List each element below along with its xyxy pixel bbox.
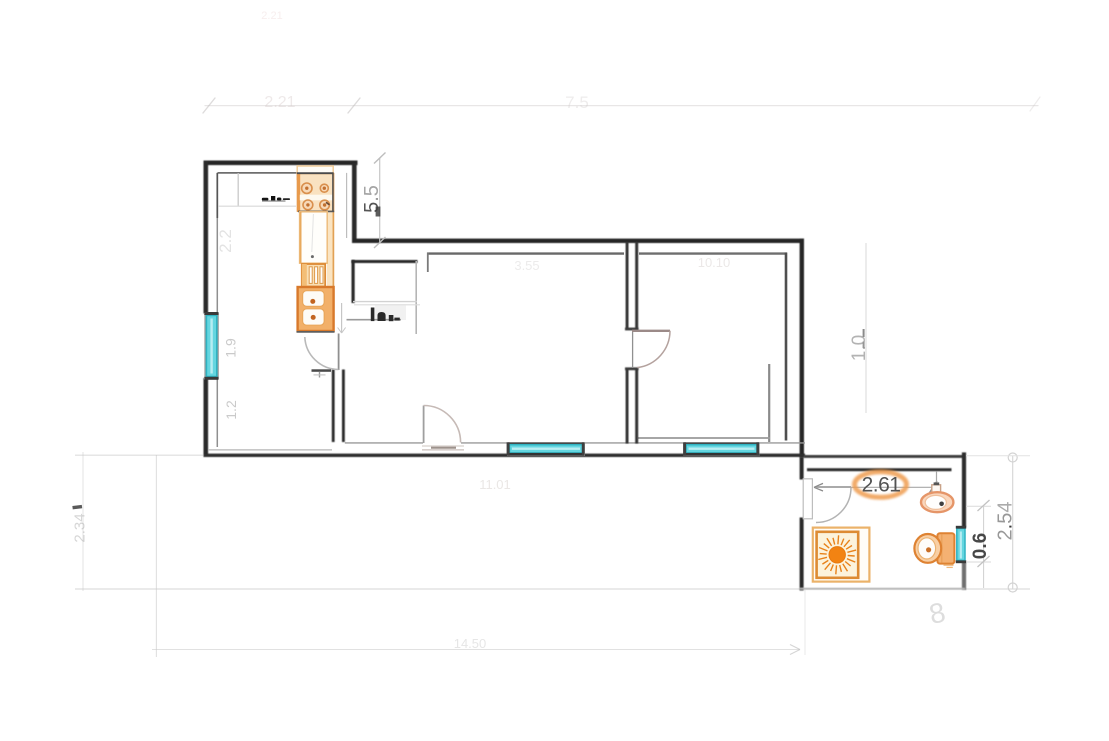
svg-text:2.2: 2.2 [216,229,235,253]
svg-text:2.34: 2.34 [72,513,89,542]
svg-text:3.55: 3.55 [514,258,539,273]
svg-text:2.61: 2.61 [862,474,901,497]
svg-text:7.5: 7.5 [565,93,589,112]
svg-text:1.0: 1.0 [849,335,870,361]
svg-text:2.54: 2.54 [995,502,1017,541]
svg-text:2.21: 2.21 [264,94,295,111]
svg-text:1.2: 1.2 [223,400,239,420]
svg-text:11.01: 11.01 [479,477,511,492]
svg-text:2.21: 2.21 [261,10,282,22]
svg-text:10.10: 10.10 [698,255,731,270]
svg-text:1.9: 1.9 [223,338,239,358]
svg-text:0.6: 0.6 [970,533,991,559]
svg-text:14.50: 14.50 [454,636,487,651]
